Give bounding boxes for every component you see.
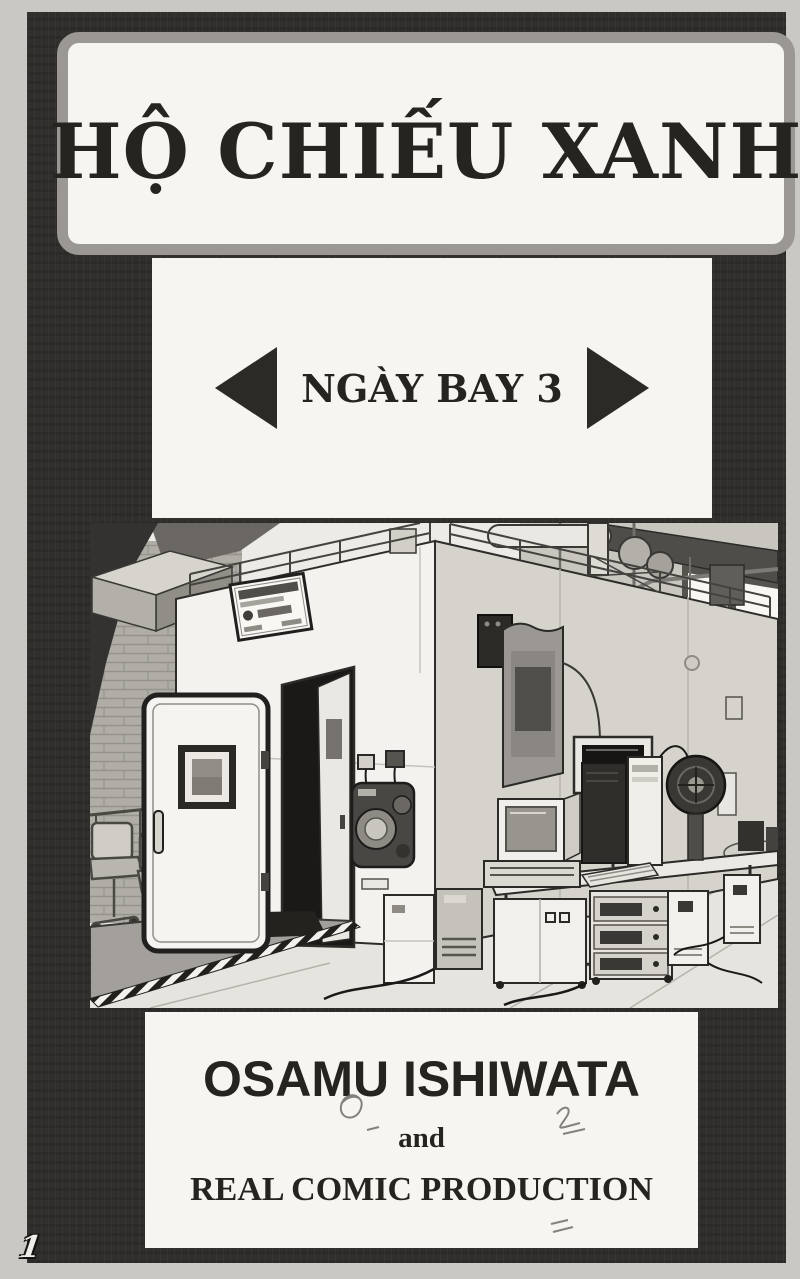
chapter-box: NGÀY BAY 3 <box>152 258 712 518</box>
chapter-label: NGÀY BAY 3 <box>297 366 567 411</box>
illu-cabinets <box>494 891 672 989</box>
studio-name: REAL COMIC PRODUCTION <box>145 1171 698 1209</box>
credits-connector: and <box>145 1122 698 1155</box>
illu-open-door <box>144 695 269 951</box>
manga-page: HỘ CHIẾU XANH NGÀY BAY 3 <box>0 0 800 1279</box>
title-box: HỘ CHIẾU XANH <box>57 32 795 255</box>
author-name: OSAMU ISHIWATA <box>145 1050 698 1108</box>
machine-room-drawing <box>90 523 778 1008</box>
left-arrow-icon <box>215 347 277 429</box>
right-arrow-icon <box>587 347 649 429</box>
illustration-panel <box>90 523 778 1008</box>
illu-warning-sign <box>230 573 312 640</box>
credits-box: OSAMU ISHIWATA and REAL COMIC PRODUCTION <box>145 1012 698 1248</box>
illu-doorway <box>282 667 354 947</box>
page-title: HỘ CHIẾU XANH <box>50 91 800 196</box>
